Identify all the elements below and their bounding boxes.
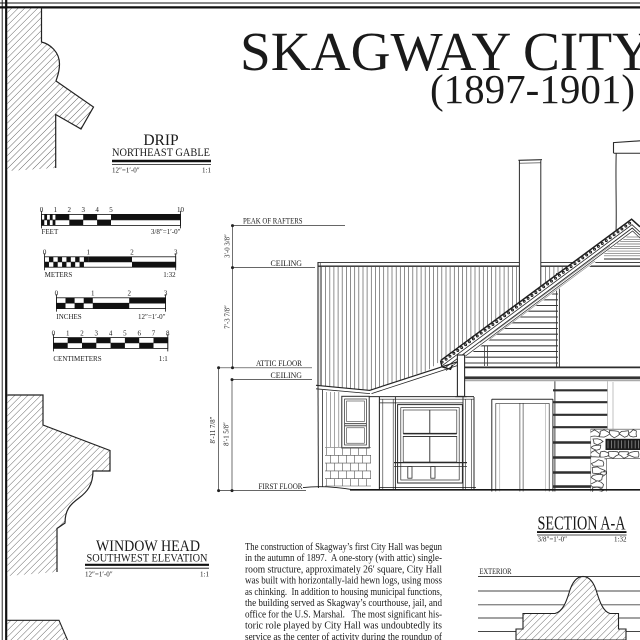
svg-text:3: 3	[95, 329, 99, 337]
svg-text:7′-3 7/8″: 7′-3 7/8″	[225, 305, 232, 329]
svg-text:0: 0	[52, 329, 56, 337]
svg-text:3: 3	[174, 249, 178, 257]
svg-text:5: 5	[123, 329, 127, 337]
svg-text:CEILING: CEILING	[271, 259, 303, 268]
svg-text:in the autumn of 1897. A one-: in the autumn of 1897. A one-story (with…	[245, 553, 442, 564]
svg-text:1: 1	[54, 206, 58, 214]
svg-text:FIRST FLOOR: FIRST FLOOR	[259, 482, 304, 491]
svg-text:5: 5	[109, 206, 113, 214]
svg-text:2: 2	[127, 290, 131, 298]
svg-text:as chinking. In addition to h: as chinking. In addition to housing muni…	[245, 587, 442, 598]
svg-text:12″=1′-0″: 12″=1′-0″	[85, 571, 113, 579]
svg-text:4: 4	[95, 206, 99, 214]
svg-text:12″=1′-0″: 12″=1′-0″	[138, 313, 166, 321]
svg-text:1: 1	[66, 329, 70, 337]
svg-text:1: 1	[91, 290, 95, 298]
svg-text:(1897-1901): (1897-1901)	[430, 66, 635, 112]
svg-text:2: 2	[68, 206, 72, 214]
svg-text:3/8″=1′-0″: 3/8″=1′-0″	[151, 228, 181, 236]
svg-text:3/8″=1′-0″: 3/8″=1′-0″	[538, 536, 568, 544]
svg-text:SOUTHWEST ELEVATION: SOUTHWEST ELEVATION	[87, 551, 208, 565]
svg-text:office for the U.S. Marshal.: office for the U.S. Marshal. The most si…	[245, 609, 442, 620]
svg-text:METERS: METERS	[45, 271, 73, 279]
svg-text:service as the center of activ: service as the center of activity during…	[245, 632, 442, 640]
svg-text:2: 2	[130, 249, 134, 257]
svg-text:The construction of Skagway’s: The construction of Skagway’s first City…	[245, 542, 443, 553]
svg-text:1:32: 1:32	[614, 536, 627, 544]
svg-text:CENTIMETERS: CENTIMETERS	[53, 355, 101, 363]
svg-text:2: 2	[80, 329, 84, 337]
svg-text:the building served as Skagway: the building served as Skagway’s courtho…	[245, 598, 443, 609]
svg-text:4: 4	[109, 329, 113, 337]
svg-text:3: 3	[81, 206, 85, 214]
svg-text:room structure, approximately: room structure, approximately 26′ square…	[245, 564, 442, 575]
svg-text:FEET: FEET	[42, 228, 59, 236]
svg-text:EXTERIOR: EXTERIOR	[480, 567, 513, 576]
svg-text:8′-11 7/8″: 8′-11 7/8″	[210, 416, 217, 443]
svg-text:ATTIC FLOOR: ATTIC FLOOR	[256, 359, 303, 368]
svg-text:10: 10	[177, 206, 185, 214]
svg-text:1:1: 1:1	[159, 355, 168, 363]
svg-text:8: 8	[166, 329, 170, 337]
svg-text:1:32: 1:32	[163, 271, 176, 279]
svg-text:toric role played by City Hall: toric role played by City Hall was undou…	[245, 621, 442, 632]
svg-text:1:1: 1:1	[200, 571, 209, 579]
svg-text:1: 1	[87, 249, 91, 257]
svg-text:3: 3	[164, 290, 168, 298]
svg-text:6: 6	[137, 329, 141, 337]
svg-text:was built with horizontally-la: was built with horizontally-laid hewn lo…	[245, 576, 442, 587]
svg-text:0: 0	[40, 206, 44, 214]
svg-text:CEILING: CEILING	[271, 371, 303, 380]
svg-text:7: 7	[152, 329, 156, 337]
svg-text:3′-0 3/8″: 3′-0 3/8″	[225, 234, 232, 258]
svg-text:PEAK OF RAFTERS: PEAK OF RAFTERS	[243, 217, 303, 226]
svg-text:12″=1′-0″: 12″=1′-0″	[112, 167, 140, 175]
svg-text:8′-1 5/8″: 8′-1 5/8″	[224, 422, 231, 446]
svg-text:1:1: 1:1	[202, 167, 211, 175]
svg-text:NORTHEAST GABLE: NORTHEAST GABLE	[112, 145, 210, 159]
svg-text:0: 0	[55, 290, 59, 298]
svg-text:INCHES: INCHES	[56, 313, 81, 321]
svg-text:0: 0	[43, 249, 47, 257]
